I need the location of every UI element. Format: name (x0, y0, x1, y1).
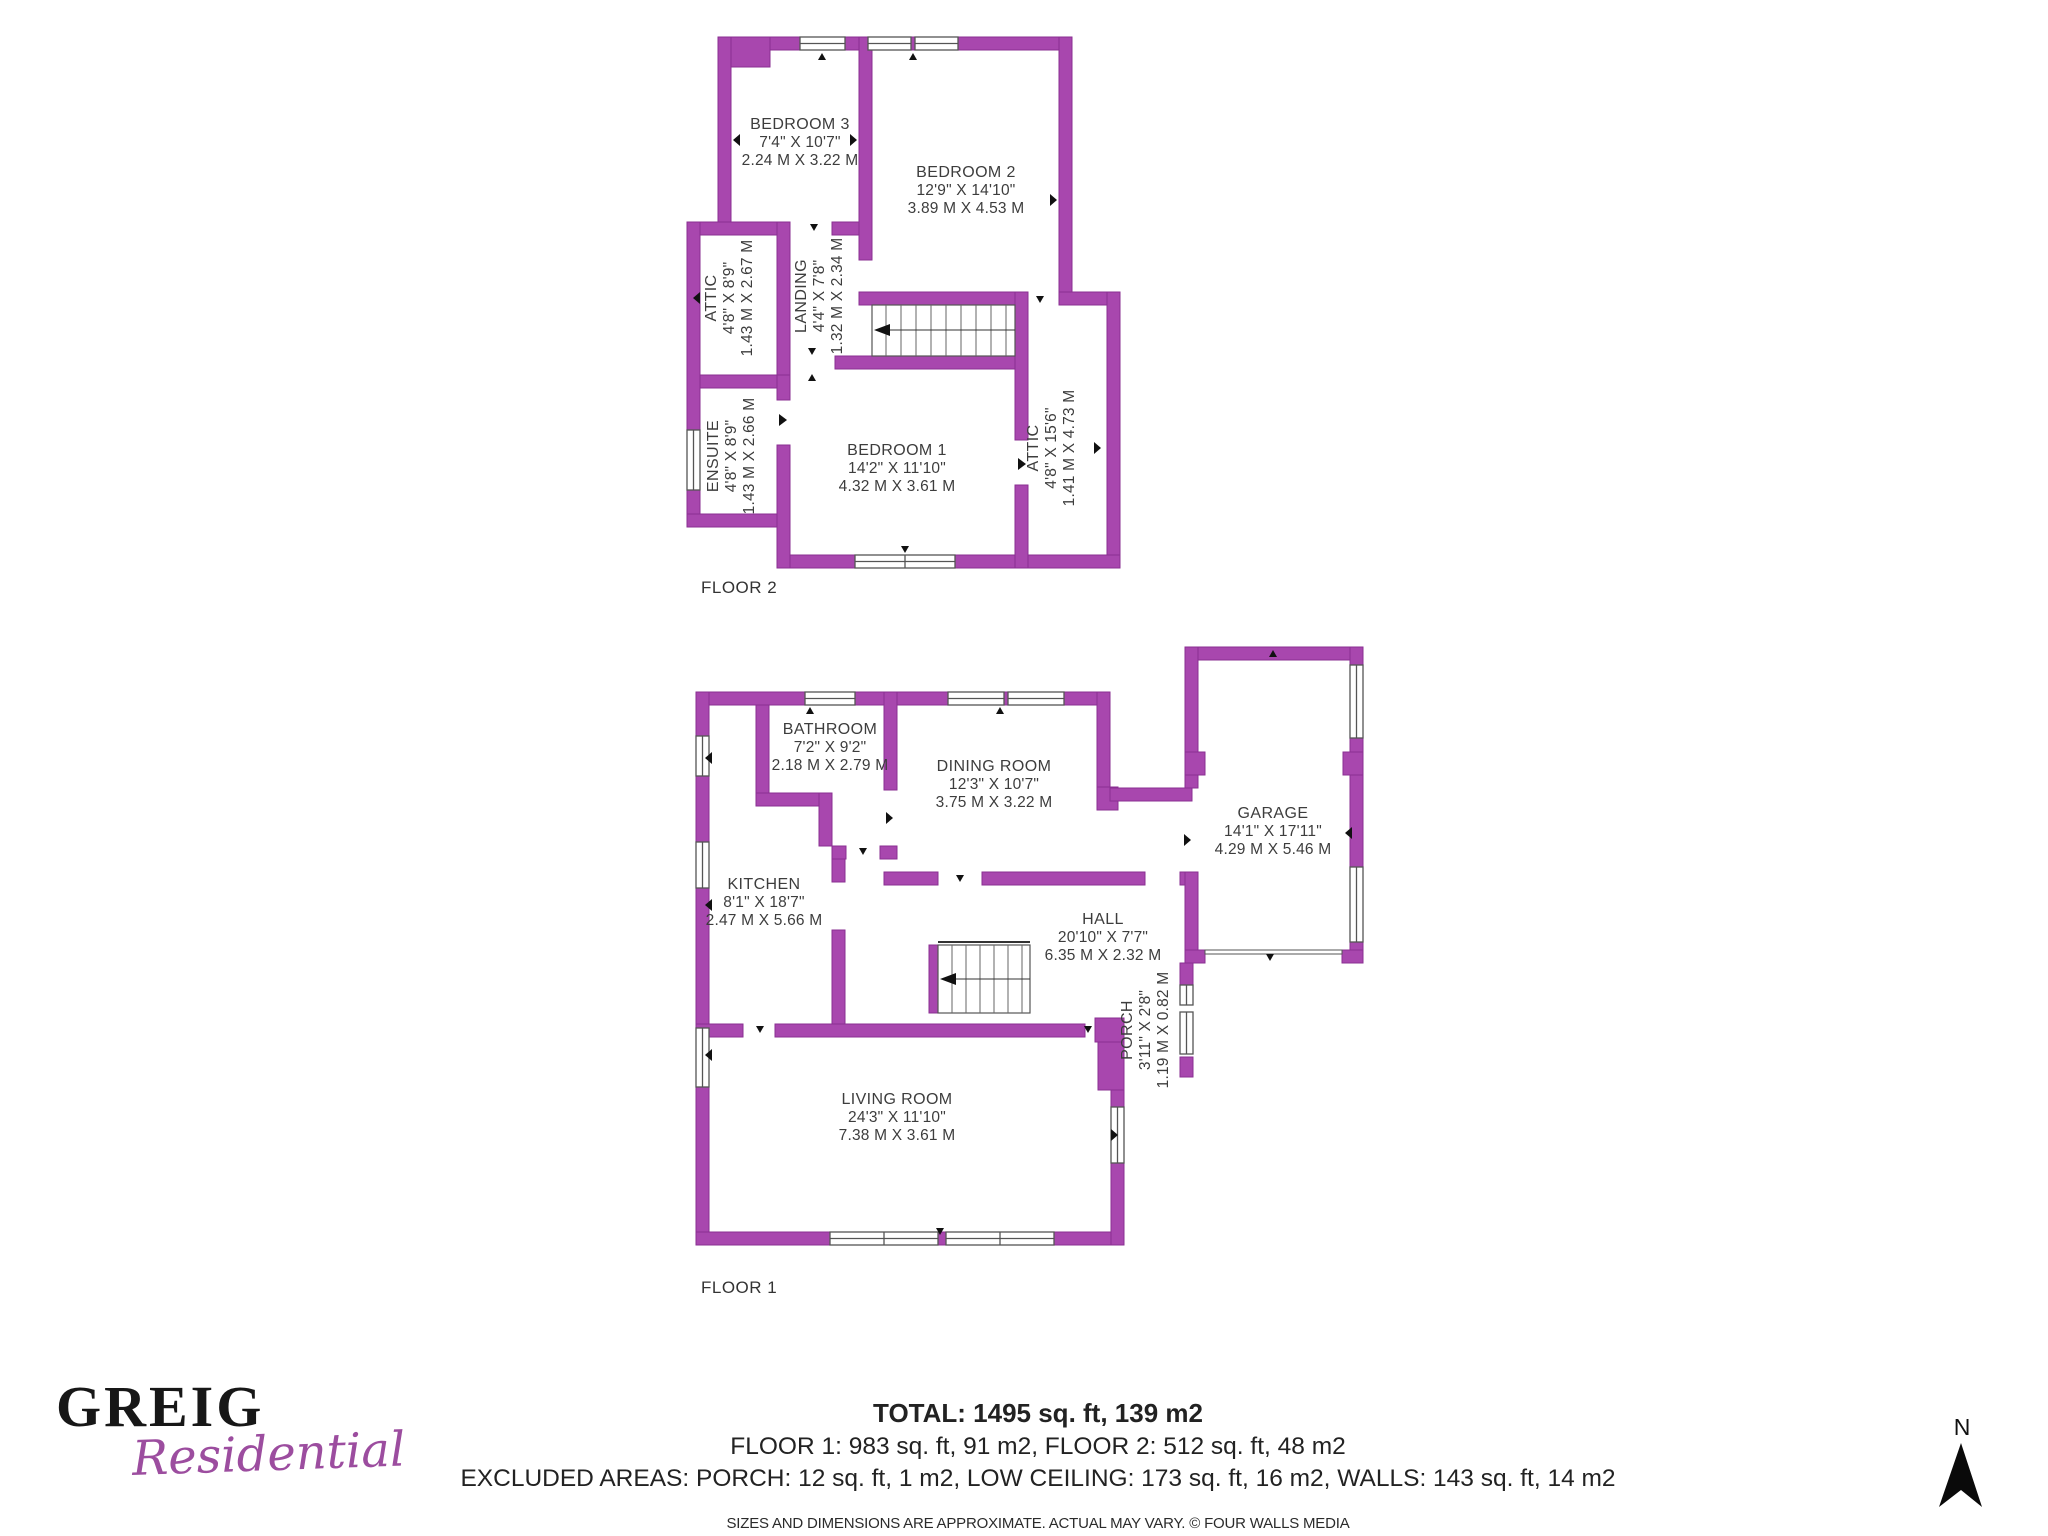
room-dim-imperial: 4'8" X 15'6" (1043, 390, 1061, 507)
room-dim-metric: 1.43 M X 2.66 M (741, 398, 759, 515)
floor2-label: FLOOR 2 (701, 578, 777, 598)
room-dim-metric: 6.35 M X 2.32 M (1045, 947, 1162, 965)
room-label-landing: LANDING 4'4" X 7'8" 1.32 M X 2.34 M (793, 238, 847, 355)
north-compass: N (1934, 1414, 1986, 1516)
room-dim-imperial: 7'2" X 9'2" (772, 739, 889, 757)
room-name: PORCH (1119, 972, 1137, 1089)
room-label-kitchen: KITCHEN 8'1" X 18'7" 2.47 M X 5.66 M (706, 876, 823, 930)
floor2-stairs (872, 305, 1015, 356)
room-dim-imperial: 14'2" X 11'10" (839, 460, 956, 478)
room-label-bedroom-2: BEDROOM 2 12'9" X 14'10" 3.89 M X 4.53 M (908, 164, 1025, 218)
room-dim-metric: 3.75 M X 3.22 M (936, 794, 1053, 812)
room-dim-metric: 2.24 M X 3.22 M (742, 152, 859, 170)
room-dim-metric: 1.43 M X 2.67 M (739, 240, 757, 357)
room-dim-metric: 4.29 M X 5.46 M (1215, 841, 1332, 859)
disclaimer-text: SIZES AND DIMENSIONS ARE APPROXIMATE. AC… (28, 1515, 2048, 1532)
north-label: N (1938, 1414, 1986, 1441)
room-label-bathroom: BATHROOM 7'2" X 9'2" 2.18 M X 2.79 M (772, 721, 889, 775)
area-summary: TOTAL: 1495 sq. ft, 139 m2 FLOOR 1: 983 … (28, 1398, 2048, 1532)
room-dim-imperial: 4'8" X 8'9" (721, 240, 739, 357)
room-label-garage: GARAGE 14'1" X 17'11" 4.29 M X 5.46 M (1215, 805, 1332, 859)
north-arrow-icon (1936, 1441, 1984, 1511)
room-dim-imperial: 4'8" X 8'9" (723, 398, 741, 515)
room-name: BEDROOM 2 (908, 164, 1025, 182)
floor1-stairs (938, 942, 1030, 1013)
room-dim-imperial: 7'4" X 10'7" (742, 134, 859, 152)
room-label-attic-right: ATTIC 4'8" X 15'6" 1.41 M X 4.73 M (1025, 390, 1079, 507)
room-name: ATTIC (703, 240, 721, 357)
room-label-dining-room: DINING ROOM 12'3" X 10'7" 3.75 M X 3.22 … (936, 758, 1053, 812)
room-name: GARAGE (1215, 805, 1332, 823)
room-dim-imperial: 12'3" X 10'7" (936, 776, 1053, 794)
room-name: ATTIC (1025, 390, 1043, 507)
room-name: ENSUITE (705, 398, 723, 515)
room-dim-imperial: 4'4" X 7'8" (811, 238, 829, 355)
room-label-bedroom-1: BEDROOM 1 14'2" X 11'10" 4.32 M X 3.61 M (839, 442, 956, 496)
room-dim-metric: 1.41 M X 4.73 M (1061, 390, 1079, 507)
room-name: HALL (1045, 911, 1162, 929)
room-name: BEDROOM 3 (742, 116, 859, 134)
room-label-hall: HALL 20'10" X 7'7" 6.35 M X 2.32 M (1045, 911, 1162, 965)
room-dim-metric: 2.47 M X 5.66 M (706, 912, 823, 930)
room-name: BATHROOM (772, 721, 889, 739)
room-name: LIVING ROOM (839, 1091, 956, 1109)
floor1-label: FLOOR 1 (701, 1278, 777, 1298)
room-dim-imperial: 3'11" X 2'8" (1137, 972, 1155, 1089)
room-dim-metric: 2.18 M X 2.79 M (772, 757, 889, 775)
room-dim-metric: 1.32 M X 2.34 M (829, 238, 847, 355)
room-dim-imperial: 24'3" X 11'10" (839, 1109, 956, 1127)
room-label-living-room: LIVING ROOM 24'3" X 11'10" 7.38 M X 3.61… (839, 1091, 956, 1145)
room-label-attic-left: ATTIC 4'8" X 8'9" 1.43 M X 2.67 M (703, 240, 757, 357)
room-dim-metric: 7.38 M X 3.61 M (839, 1127, 956, 1145)
room-dim-metric: 3.89 M X 4.53 M (908, 200, 1025, 218)
room-label-bedroom-3: BEDROOM 3 7'4" X 10'7" 2.24 M X 3.22 M (742, 116, 859, 170)
floor-areas-text: FLOOR 1: 983 sq. ft, 91 m2, FLOOR 2: 512… (28, 1433, 2048, 1461)
room-label-porch: PORCH 3'11" X 2'8" 1.19 M X 0.82 M (1119, 972, 1173, 1089)
total-area-text: TOTAL: 1495 sq. ft, 139 m2 (28, 1398, 2048, 1429)
room-name: BEDROOM 1 (839, 442, 956, 460)
floor1-garage-door (1205, 950, 1342, 954)
room-label-ensuite: ENSUITE 4'8" X 8'9" 1.43 M X 2.66 M (705, 398, 759, 515)
room-dim-imperial: 20'10" X 7'7" (1045, 929, 1162, 947)
room-dim-imperial: 8'1" X 18'7" (706, 894, 823, 912)
excluded-areas-text: EXCLUDED AREAS: PORCH: 12 sq. ft, 1 m2, … (28, 1465, 2048, 1493)
room-name: KITCHEN (706, 876, 823, 894)
room-dim-imperial: 14'1" X 17'11" (1215, 823, 1332, 841)
room-dim-metric: 1.19 M X 0.82 M (1155, 972, 1173, 1089)
room-name: DINING ROOM (936, 758, 1053, 776)
room-name: LANDING (793, 238, 811, 355)
room-dim-metric: 4.32 M X 3.61 M (839, 478, 956, 496)
room-dim-imperial: 12'9" X 14'10" (908, 182, 1025, 200)
